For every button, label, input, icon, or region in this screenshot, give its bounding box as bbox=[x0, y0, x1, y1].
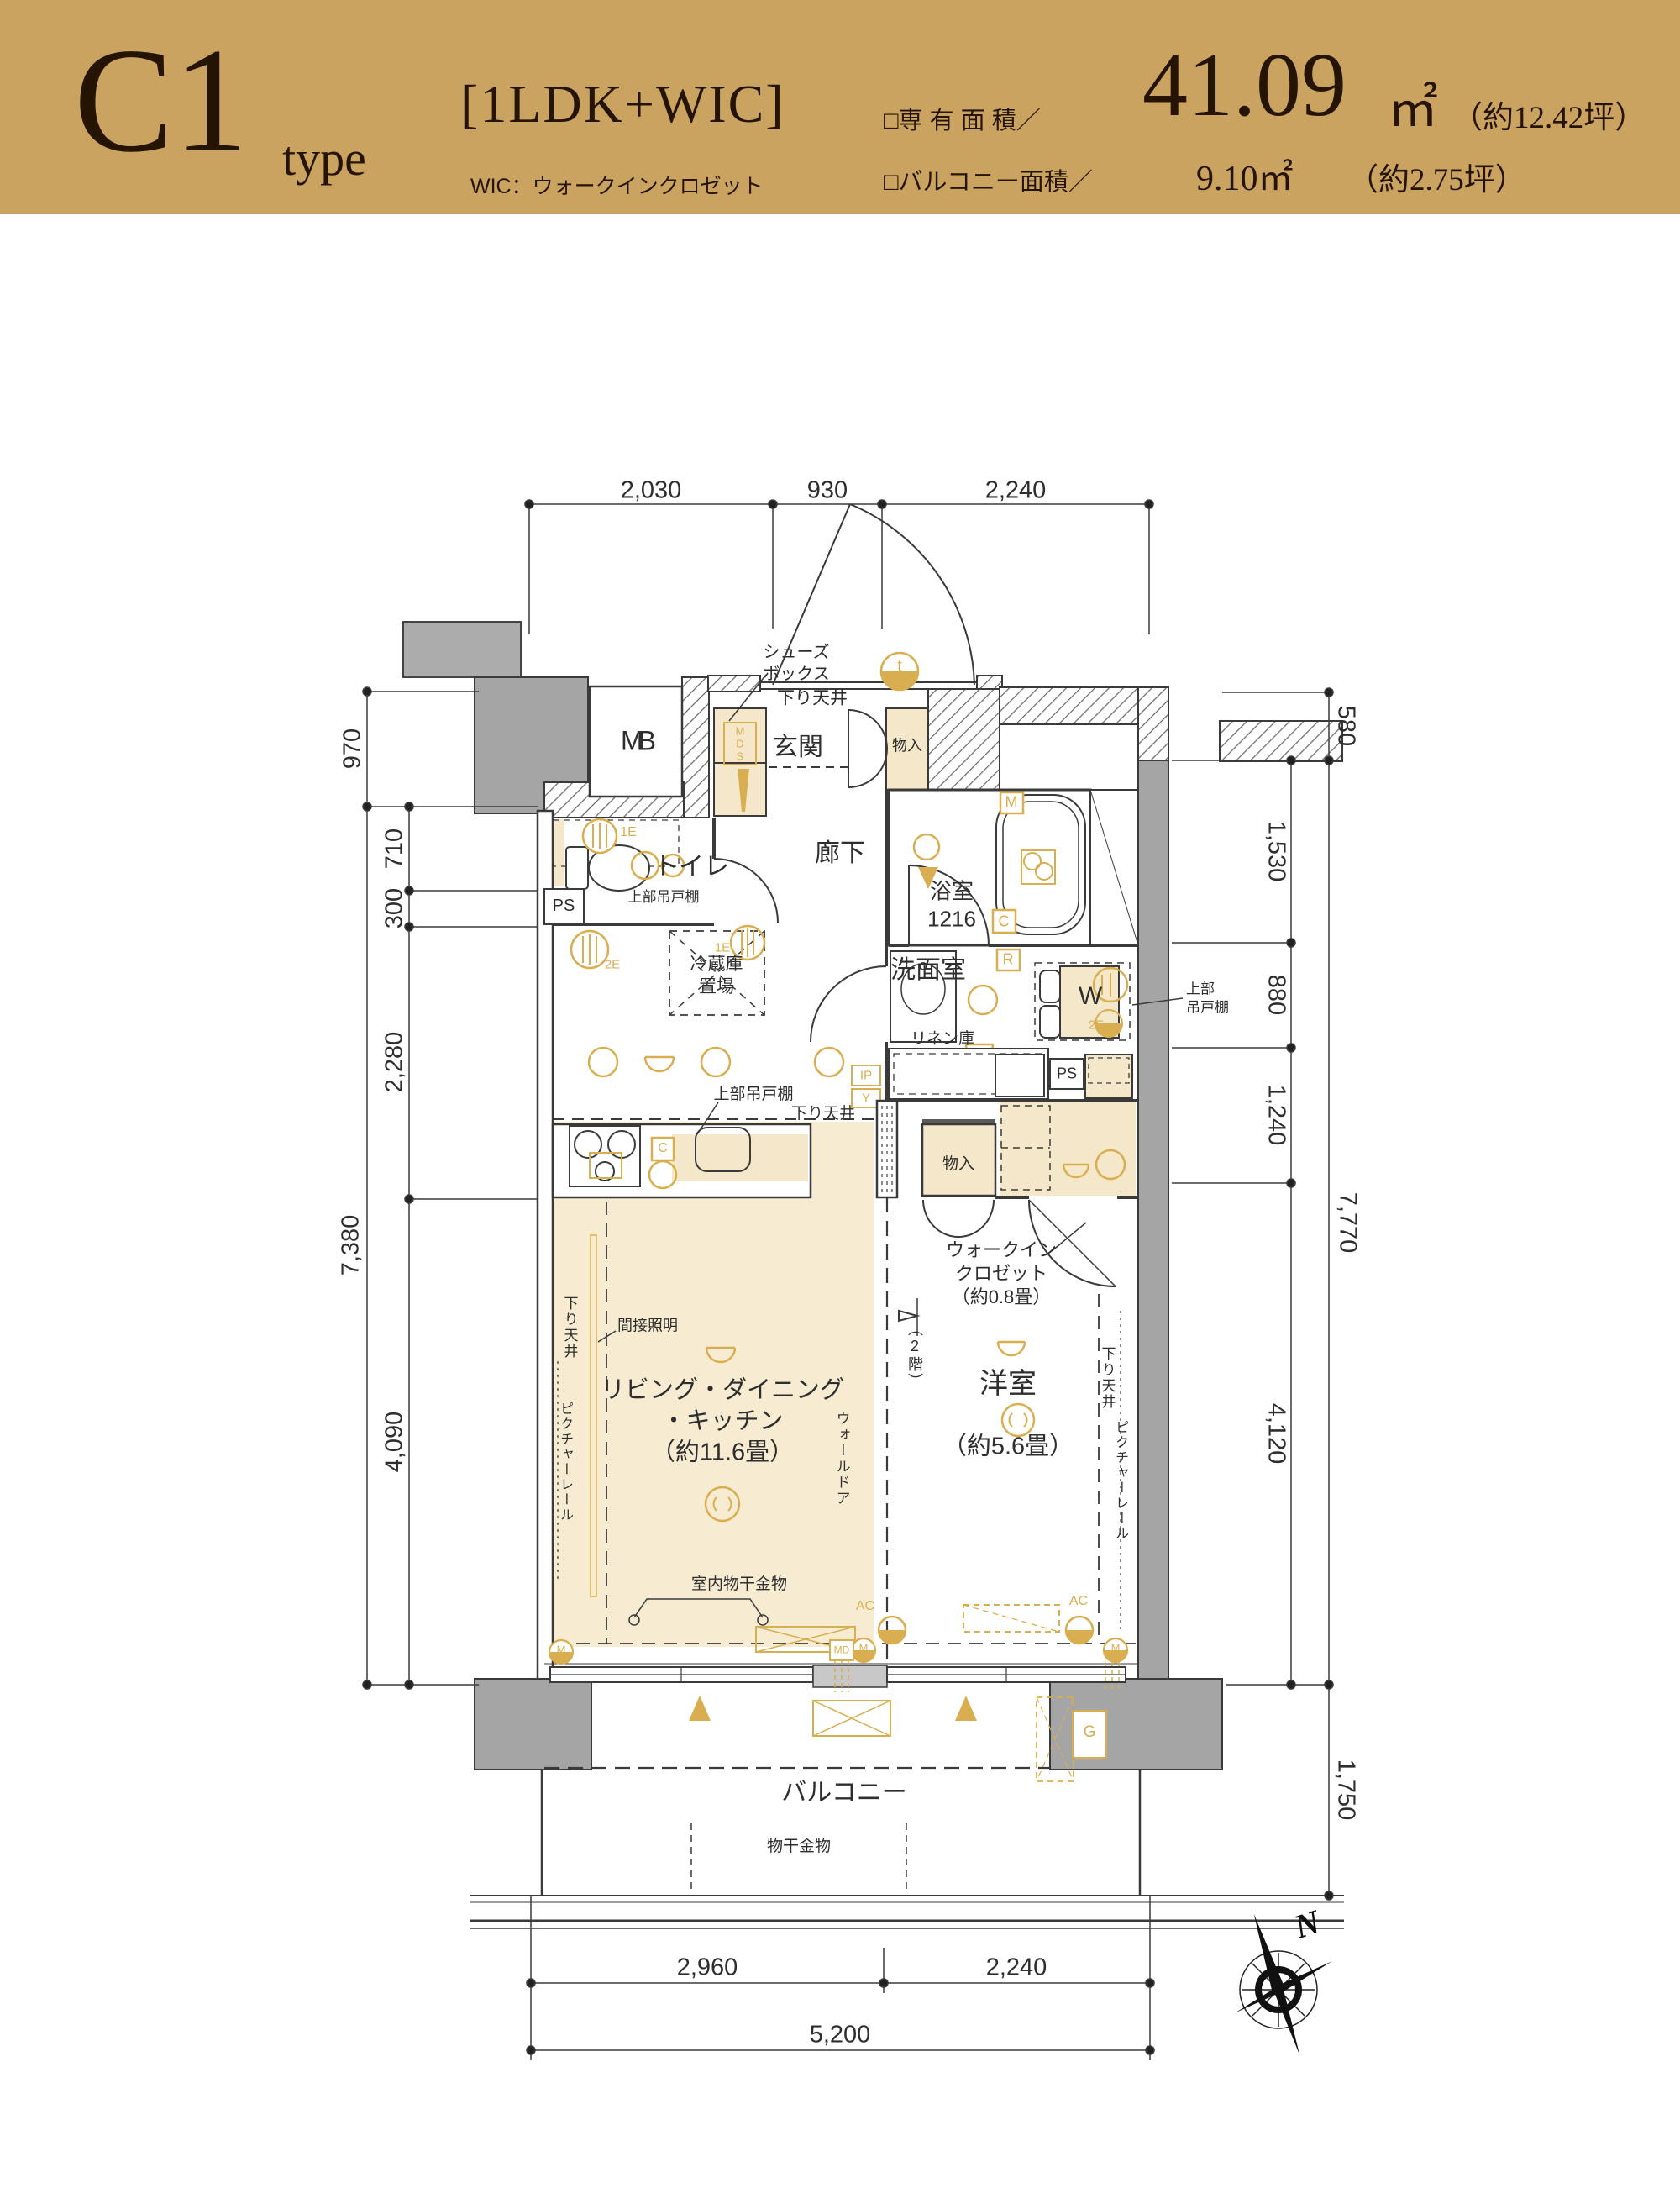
balcony-area-label: □バルコニー面積／ bbox=[884, 171, 1093, 195]
room-bath: 浴室 1216 bbox=[927, 878, 976, 934]
room-senmenshitsu: 洗面室 bbox=[890, 955, 966, 986]
room-genkan: 玄関 bbox=[773, 732, 823, 764]
linen-label: リネン庫 bbox=[911, 1029, 974, 1049]
dim-right-1530: 1,530 bbox=[1260, 821, 1291, 882]
badge-ac-youshitsu: AC bbox=[1069, 1593, 1088, 1610]
header-band: C1 type [1LDK+WIC] WIC：ウォークインクロゼット □専 有 … bbox=[0, 0, 1680, 214]
unit-type-title: C1 bbox=[74, 25, 249, 175]
floor-plan bbox=[0, 0, 1680, 2188]
badge-m-bath: M bbox=[1005, 792, 1018, 812]
dim-bottom-5200: 5,200 bbox=[810, 2019, 871, 2050]
mono-ire-wic: 物入 bbox=[942, 1154, 974, 1175]
dim-top-1: 2,030 bbox=[621, 475, 682, 506]
layout-label: [1LDK+WIC] bbox=[460, 77, 785, 131]
badge-mds: MDS bbox=[735, 725, 746, 763]
dim-right-1240: 1,240 bbox=[1260, 1085, 1291, 1146]
badge-m-2: M bbox=[859, 1642, 869, 1656]
shoes-box-label: シューズ ボックス bbox=[763, 642, 829, 685]
dim-right-880: 880 bbox=[1260, 975, 1291, 1015]
ps-label-center: PS bbox=[1057, 1064, 1077, 1083]
mono-ire-genkan: 物入 bbox=[892, 736, 922, 755]
badge-ip: IP bbox=[860, 1067, 872, 1083]
ps-label-left: PS bbox=[553, 896, 575, 918]
badge-r-bath: R bbox=[1003, 949, 1014, 969]
mono-ire-door-arc bbox=[923, 1200, 958, 1237]
dim-right-1750: 1,750 bbox=[1330, 1759, 1361, 1821]
senyu-area-label: □専 有 面 積／ bbox=[884, 109, 1041, 134]
dim-bottom-2240: 2,240 bbox=[986, 1952, 1047, 1983]
muroboshi-label: 室内物干金物 bbox=[691, 1575, 787, 1595]
upper-cabinet-washer: 上部 吊戸棚 bbox=[1186, 980, 1229, 1017]
badge-c-kitchen: C bbox=[658, 1140, 668, 1157]
room-ldk: リビング・ダイニング ・キッチン （約11.6畳） bbox=[601, 1375, 844, 1468]
dim-right-4120: 4,120 bbox=[1260, 1403, 1291, 1465]
reizouko-label: 冷蔵庫 置場 bbox=[690, 954, 743, 999]
upper-cabinet-kitchen: 上部吊戸棚 bbox=[713, 1085, 793, 1105]
dim-top-3: 2,240 bbox=[985, 475, 1047, 506]
wall-door-label: ウォールドア bbox=[835, 1411, 849, 1507]
room-balcony: バルコニー bbox=[781, 1777, 906, 1809]
balcony-area-tsubo: （約2.75坪） bbox=[1347, 165, 1526, 196]
dim-left-2280: 2,280 bbox=[379, 1032, 410, 1093]
badge-c-bath: C bbox=[999, 912, 1010, 931]
nikai-label: （2階） bbox=[907, 1321, 922, 1390]
dim-left-4090: 4,090 bbox=[379, 1412, 410, 1473]
senyu-area-value: 41.09 bbox=[1142, 40, 1347, 131]
washroom-door-arc bbox=[811, 966, 886, 1042]
badge-1e-toilet: 1E bbox=[620, 824, 637, 841]
kansetsu-shomei-label: 間接照明 bbox=[617, 1316, 678, 1335]
senyu-area-unit: ㎡ bbox=[1388, 84, 1438, 134]
room-wic: ウォークイン クロゼット （約0.8畳） bbox=[946, 1239, 1057, 1309]
dim-right-580: 580 bbox=[1330, 706, 1361, 746]
dim-bottom-2960: 2,960 bbox=[677, 1952, 738, 1983]
dim-left-7380: 7,380 bbox=[335, 1215, 366, 1276]
unit-type-word: type bbox=[282, 134, 366, 183]
room-toilet: トイレ bbox=[654, 851, 729, 883]
badge-2e-kitchen: 2E bbox=[605, 956, 620, 972]
badge-m-3: M bbox=[1111, 1642, 1121, 1656]
room-youshitsu-size: （約5.6畳） bbox=[942, 1431, 1074, 1462]
upper-cabinet-toilet: 上部吊戸棚 bbox=[628, 888, 700, 907]
badge-2e-washer: 2E bbox=[1089, 1017, 1104, 1033]
wic-note: WIC：ウォークインクロゼット bbox=[470, 176, 764, 197]
mb-label: MB bbox=[621, 724, 651, 759]
badge-y: Y bbox=[862, 1090, 870, 1106]
dim-left-970: 970 bbox=[337, 728, 368, 769]
badge-md: MD bbox=[834, 1644, 850, 1656]
senyu-area-tsubo: （約12.42坪） bbox=[1452, 103, 1646, 134]
sagari-tenjo-genkan: 下り天井 bbox=[777, 688, 848, 711]
badge-g: G bbox=[1084, 1723, 1096, 1743]
nikai-flag bbox=[899, 1311, 917, 1321]
badge-ac-ldk: AC bbox=[856, 1598, 874, 1615]
picture-rail-left: ピクチャーレール bbox=[558, 1402, 571, 1523]
sagari-tenjo-kitchen: 下り天井 bbox=[791, 1104, 855, 1124]
room-rouka: 廊下 bbox=[815, 838, 865, 870]
washer-label: W bbox=[1079, 981, 1102, 1012]
badge-1e-kitchen: 1E bbox=[715, 939, 730, 955]
room-youshitsu: 洋室 bbox=[979, 1366, 1037, 1403]
dim-right-7770: 7,770 bbox=[1331, 1192, 1362, 1254]
dim-left-710: 710 bbox=[379, 828, 410, 869]
badge-t: t bbox=[897, 656, 902, 678]
badge-m-1: M bbox=[557, 1644, 566, 1658]
dim-left-300: 300 bbox=[379, 888, 410, 928]
monohoshi-label: 物干金物 bbox=[764, 1837, 834, 1857]
sagari-tenjo-ldk: 下り天井 bbox=[563, 1296, 577, 1360]
picture-rail-right: ピクチャーレール bbox=[1113, 1420, 1126, 1541]
dim-top-2: 930 bbox=[807, 475, 848, 506]
sagari-tenjo-youshitsu: 下り天井 bbox=[1100, 1346, 1115, 1410]
balcony-area-value: 9.10㎡ bbox=[1196, 161, 1294, 197]
